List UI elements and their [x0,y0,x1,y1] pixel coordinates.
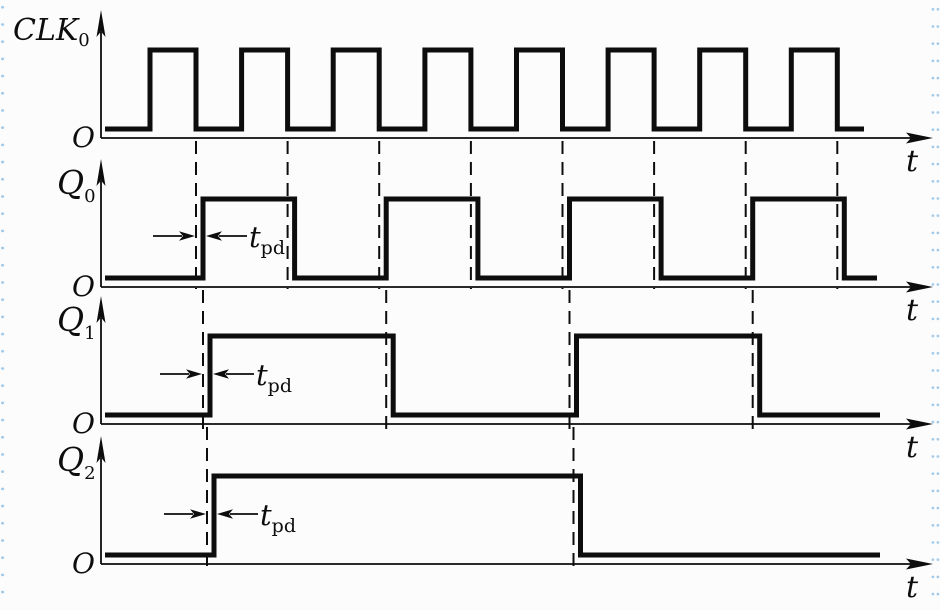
edge-dot [1,109,4,112]
edge-dot [937,25,940,28]
edge-dot [937,507,940,510]
tpd-annotation: tpd [160,358,292,397]
edge-dot [932,249,935,252]
edge-dot [937,283,940,286]
origin-label: O [72,547,95,580]
edge-dot [1,161,4,164]
edge-dot [937,232,940,235]
edge-dot [932,77,935,80]
edge-dot [937,421,940,424]
edge-dot [932,94,935,97]
edge-dot [1,230,4,233]
time-label: t [906,293,919,328]
origin-label: O [72,121,95,154]
edge-dot [937,300,940,303]
edge-dot [937,214,940,217]
edge-dot [1,367,4,370]
edge-dot [1,505,4,508]
edge-dot [937,576,940,579]
edge-dot [1,574,4,577]
edge-dot [932,558,935,561]
edge-guide-lines [203,290,753,433]
timing-diagram: ripple-counter timing diagram CLK0OtQ0Ot… [0,0,940,610]
edge-dot [932,146,935,149]
edge-dot [932,335,935,338]
edge-dot [1,539,4,542]
edge-dot [937,60,940,63]
signal-row-Q2: Q2Ottpd [57,427,933,605]
edge-dot [1,195,4,198]
signal-row-Q0: Q0Ottpd [57,141,933,328]
edge-dot [1,23,4,26]
edge-dot [932,541,935,544]
edge-dot [932,318,935,321]
edge-dot [932,300,935,303]
edge-dot [932,283,935,286]
edge-dot [1,212,4,215]
edge-dot [937,318,940,321]
edge-dot [937,593,940,596]
edge-dot [1,350,4,353]
signal-label-CLK0: CLK0 [13,13,90,51]
edge-dot [937,128,940,131]
edge-dot [1,298,4,301]
edge-dot [937,455,940,458]
edge-dot [1,40,4,43]
edge-dot [932,214,935,217]
edge-dot [932,352,935,355]
edge-dot [932,490,935,493]
edge-dot [932,128,935,131]
edge-dot [932,266,935,269]
edge-dot [1,92,4,95]
edge-dot [1,6,4,9]
edge-dot [1,316,4,319]
edge-dot [932,163,935,166]
edge-dot [937,438,940,441]
edge-dot [1,591,4,594]
tpd-label: tpd [249,220,285,259]
edge-dot [937,42,940,45]
signal-row-CLK0: CLK0Ot [13,10,933,179]
edge-dot [937,180,940,183]
edge-dot [937,386,940,389]
edge-dot [932,232,935,235]
edge-dot [937,266,940,269]
edge-dot [932,507,935,510]
timing-diagram-svg: ripple-counter timing diagram CLK0OtQ0Ot… [0,0,940,610]
edge-dot [932,111,935,114]
waveform-Q2 [105,476,880,555]
edge-dot [937,111,940,114]
edge-dot [937,146,940,149]
edge-dot [1,247,4,250]
edge-dot [932,404,935,407]
edge-dot [1,75,4,78]
tpd-label: tpd [260,498,296,537]
edge-dot [937,490,940,493]
edge-dot [937,558,940,561]
signal-row-Q1: Q1Ottpd [57,290,933,465]
edge-dot [932,593,935,596]
tpd-annotation: tpd [164,498,296,537]
time-label: t [906,144,919,179]
edge-dot [932,25,935,28]
edge-dot [1,402,4,405]
edge-dot [1,264,4,267]
time-label: t [906,430,919,465]
edge-dot [1,488,4,491]
time-label: t [906,570,919,605]
edge-dot [937,94,940,97]
edge-dot [937,404,940,407]
edge-dot [1,333,4,336]
edge-dot [932,180,935,183]
edge-dot [932,60,935,63]
tpd-annotation: tpd [153,220,285,259]
edge-dot [937,335,940,338]
edge-dot [932,369,935,372]
edge-dot [932,8,935,11]
edge-dot [932,524,935,527]
edge-dot [937,472,940,475]
edge-dot [937,352,940,355]
edge-dot [1,556,4,559]
edge-dot [932,386,935,389]
edge-dot [937,77,940,80]
edge-dot [1,436,4,439]
signal-label-Q1: Q1 [57,300,96,344]
edge-dot [932,472,935,475]
edge-dot [932,421,935,424]
edge-dot [932,438,935,441]
edge-dot [1,126,4,129]
edge-dot [932,576,935,579]
waveform-CLK0 [105,50,864,129]
waveform-Q0 [105,199,877,278]
edge-dot [1,419,4,422]
edge-dot [937,541,940,544]
edge-dot [937,197,940,200]
edge-dot [932,455,935,458]
edge-dot [1,384,4,387]
edge-dot [1,144,4,147]
origin-label: O [72,270,95,303]
edge-dot [1,178,4,181]
signal-label-Q2: Q2 [57,440,96,484]
edge-dot [937,369,940,372]
edge-dot [937,524,940,527]
edge-dot [932,42,935,45]
tpd-label: tpd [256,358,292,397]
origin-label: O [72,407,95,440]
edge-dot [937,163,940,166]
edge-dot [937,249,940,252]
edge-dot [1,470,4,473]
edge-dot [932,197,935,200]
signal-label-Q0: Q0 [57,163,96,207]
edge-dot [1,453,4,456]
edge-dot [937,8,940,11]
edge-dot [1,522,4,525]
edge-dot [1,58,4,61]
edge-dot [1,281,4,284]
